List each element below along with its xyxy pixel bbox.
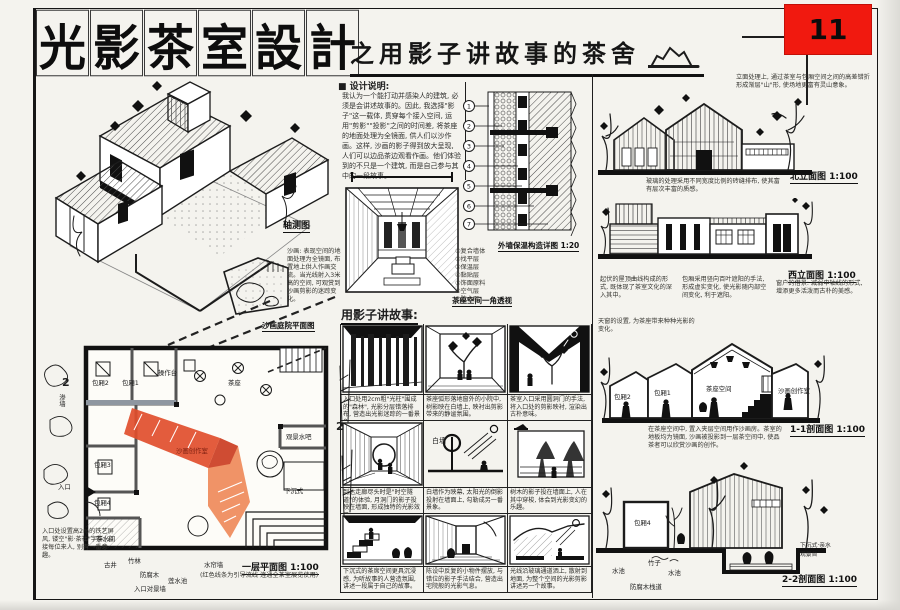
storyboard-cell: 白墙 白墙作为映幕, 太阳光的倒影投射在墙面上, 勾勒成另一番景象。: [424, 421, 508, 514]
axon-caption: 轴测图: [283, 218, 310, 233]
wall-detail-drawing: 1 2 3 4 5 6 7: [458, 86, 588, 236]
callout-number: 5: [467, 183, 471, 191]
callout-number: 4: [467, 163, 471, 171]
plan-room-label: 包厢3: [94, 460, 111, 469]
north-elevation-drawing: [596, 92, 814, 184]
subtitle-text: 之用影子讲故事的茶舍: [350, 34, 640, 69]
section11-caption: 1-1剖面图 1:100: [790, 422, 865, 437]
bamboo-scribbles: [332, 356, 362, 546]
legend-item: ③保温层: [455, 264, 485, 272]
callout-number: 1: [467, 103, 471, 111]
title-char: 光: [36, 10, 89, 77]
title-char: 茶: [144, 10, 197, 77]
page-subtitle: 之用影子讲故事的茶舍: [350, 34, 704, 77]
storyboard-caption: 下沉式的茶席空间更具沉浸感, 为听故事的人营造氛围, 讲述一段属于自己的故事。: [341, 566, 423, 593]
storyboard-caption: 茶室入口采用圆洞门的手法, 将入口处的剪影映衬, 渲染出古朴意味。: [508, 394, 591, 421]
wall-detail-legend: ①复合墙体 ②找平层 ③保温层 ④黏贴层 ⑤饰面原料 ⑥空气层 ⑦防水层: [455, 248, 485, 304]
storyboard-grid: 入口处用2cm粗"光柱"围成的"森林", 光影分层错落排布, 营造出光影迷踪的一…: [340, 324, 592, 593]
title-char: 影: [90, 10, 143, 77]
page-title: 光 影 茶 室 設 計: [36, 11, 360, 75]
scan-edge-right: [876, 0, 900, 610]
storyboard-cell: 树木的影子投在墙面上, 人在其中穿梭, 体会到光影变幻的乐趣。: [508, 421, 592, 514]
storyboard-cell: 茶座弧形落地窗外的小院中, 树影映在白墙上, 映衬出剪影带来的静谧氛围。: [424, 324, 508, 421]
interior-perspective-drawing: [344, 186, 460, 294]
storyboard-cell: 光线沿玻璃通道洒上, 散射到地面, 为整个空间的光影剪影讲述另一个故事。: [508, 514, 592, 593]
white-wall-shadow-diagram: 白墙: [424, 421, 507, 487]
design-notes-header: ■ 设计说明:: [338, 79, 389, 92]
callout-number: 7: [467, 221, 471, 229]
section-1-1-drawing: [596, 330, 826, 432]
section-room-label: 包厢2: [614, 392, 631, 401]
plan-outer-label: 古井: [104, 560, 117, 569]
section-label: 水池: [612, 566, 625, 575]
plan-outer-label: 防腐木: [140, 570, 159, 579]
section-label: 下沉式·亲水观景台: [800, 540, 834, 558]
plan-room-label: 包厢2: [92, 378, 109, 387]
plan-room-label: 沙画创作室: [176, 446, 208, 455]
legend-item: ⑦防水层: [455, 296, 485, 304]
storyboard-caption: 白墙作为映幕, 太阳光的倒影投射在墙面上, 勾勒成另一番景象。: [424, 487, 507, 514]
north-elevation-note-bottom: 玻璃的处理采用不同宽度比例的砖缝排布, 使其富有层次丰富的质感。: [646, 178, 782, 194]
roofline-sketch-icon: [648, 43, 700, 69]
plan-caption-note: (红色线条为引导流线 连通全茶室展览使用): [200, 572, 340, 580]
plan-entry-note: 入口处设置高2m的铁艺屏风, 镂空"影·茶社"字样, 迎接每位来人, 别有一番意…: [42, 528, 116, 560]
corridor-artifact-sketch: [424, 514, 507, 566]
west-elevation-note: 窗户的借景: 减弱中轴线的形式, 增添更多活泼而古朴的美感。: [776, 280, 868, 296]
plan-room-label: 观景水吧: [286, 432, 312, 441]
white-wall-label: 白墙: [432, 436, 446, 445]
section-room-label: 包厢1: [654, 388, 671, 397]
section22-caption: 2-2剖面图 1:100: [782, 572, 857, 587]
storyboard-header: 用影子讲故事:: [341, 306, 418, 325]
storyboard-caption: 光线沿玻璃通道洒上, 散射到地面, 为整个空间的光影剪影讲述另一个故事。: [508, 566, 591, 593]
west-elevation-note: 起伏的屋顶曲线构成的形式, 既体现了茶室文化的深入其中。: [600, 276, 674, 300]
plan-room-label: 操作台: [158, 368, 177, 377]
tree-window-sketch: [424, 324, 507, 394]
scan-edge-bottom: [0, 600, 900, 610]
north-elevation-caption: 北立面图 1:100: [790, 169, 858, 184]
storyboard-caption: 茶座弧形落地窗外的小院中, 树影映在白墙上, 映衬出剪影带来的静谧氛围。: [424, 394, 507, 421]
plan-outer-label: 莲水池: [168, 576, 187, 585]
badge-leader-line: [742, 36, 784, 38]
north-elevation-note-top: 立面处理上, 通过茶室与包厢空间之间的高差错折形成渐层"山"形, 使场地更富有灵…: [736, 74, 872, 90]
design-notes-body: 我认为一个能打动并感染人的建筑, 必须是会讲述故事的。因此, 我选择"影子"这一…: [342, 92, 462, 181]
west-elevation-note: 包厢采用竖向百叶遮阳的手法, 形成虚实变化, 使光影随内部空间变化, 利于遮阳。: [682, 276, 770, 300]
plan-room-label: 包厢1: [122, 378, 139, 387]
section11-note-bottom: 在茶座空间中, 置入夹层空间用作沙画房。茶室的地板均为镜面, 沙画被投影到一层茶…: [648, 426, 782, 450]
dimension-line: [350, 172, 454, 182]
west-elevation-drawing: [596, 198, 814, 266]
storyboard-caption: 陈设中反复的小物件摆放, 与错位的影子手法结合, 营造出宅院般的光影气息。: [424, 566, 507, 593]
tree-shadow-wall-sketch: [508, 421, 591, 487]
section-2-2-drawing: [594, 462, 828, 588]
section-label: 防腐木栈道: [630, 582, 662, 591]
callout-number: 3: [467, 143, 471, 151]
entry-canopy-sketch: [508, 324, 591, 394]
storyboard-cell: 茶室入口采用圆洞门的手法, 将入口处的剪影映衬, 渲染出古朴意味。: [508, 324, 592, 421]
legend-item: ①复合墙体: [455, 248, 485, 256]
plan-room-label: 下沉式: [284, 486, 303, 495]
section-label: 竹子: [648, 558, 661, 567]
plan-room-label: 茶座: [228, 378, 241, 387]
storyboard-caption: 树木的影子投在墙面上, 人在其中穿梭, 体会到光影变幻的乐趣。: [508, 487, 591, 514]
legend-item: ②找平层: [455, 256, 485, 264]
title-char: 室: [198, 10, 251, 77]
section-room-label: 沙画创作室: [778, 386, 810, 395]
storyboard-cell: 陈设中反复的小物件摆放, 与错位的影子手法结合, 营造出宅院般的光影气息。: [424, 514, 508, 593]
title-char: 設: [252, 10, 305, 77]
callout-number: 2: [467, 123, 471, 131]
callout-number: 6: [467, 203, 471, 211]
section-room-label: 茶座空间: [706, 384, 732, 393]
plan-outer-label: 竹林: [128, 556, 141, 565]
wall-detail-caption: 外墙保温构造详图 1:20: [498, 240, 579, 252]
glass-roof-light-sketch: [508, 514, 591, 566]
section-room-label: 包厢4: [634, 518, 651, 527]
plan-outer-label: 水帘墙: [204, 560, 223, 569]
shrub-scribbles: [40, 350, 82, 520]
board-number-badge: 11: [784, 4, 872, 55]
section-label: 水池: [668, 568, 681, 577]
plan-room-label: 包厢4: [94, 498, 111, 507]
plan-outer-label: 入口对景墙: [134, 584, 166, 593]
presentation-board: 光 影 茶 室 設 計 之用影子讲故事的茶舍 11: [0, 0, 900, 610]
